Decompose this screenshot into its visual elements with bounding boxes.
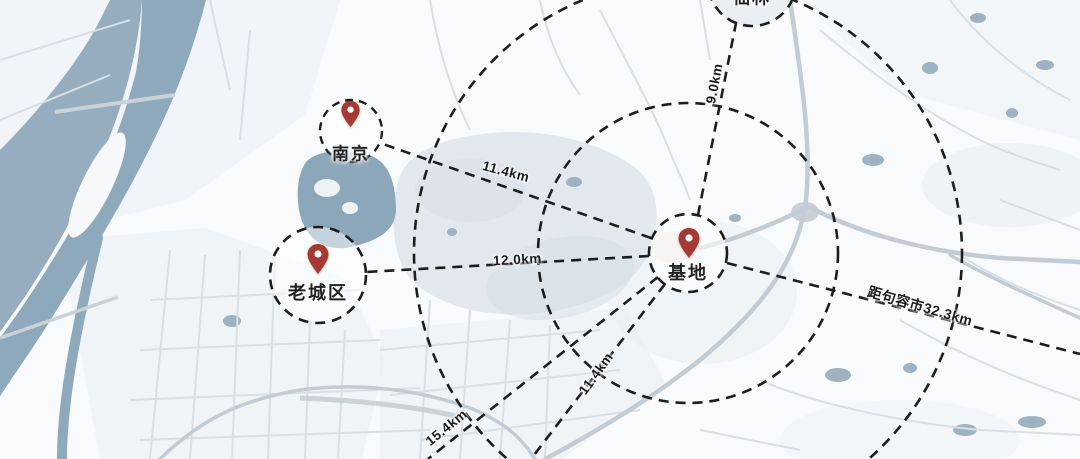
- xianlin-label: 仙林: [733, 0, 771, 9]
- map-canvas: 南京 老城区 基地 仙林 11.4km 12.0km 9.0km 11.4km …: [0, 0, 1080, 459]
- old-town-pin[interactable]: [306, 243, 330, 275]
- old-town-label: 老城区: [288, 279, 348, 305]
- distance-label-ssw: 15.4km: [423, 406, 470, 448]
- distance-label-southwest: 11.4km: [576, 350, 616, 398]
- distance-label-nanjing: 11.4km: [481, 158, 531, 185]
- annotation-overlay: 南京 老城区 基地 仙林 11.4km 12.0km 9.0km 11.4km …: [0, 0, 1080, 459]
- site-pin[interactable]: [677, 227, 701, 259]
- distance-label-xianlin: 9.0km: [703, 62, 726, 105]
- nanjing-pin[interactable]: [340, 100, 361, 128]
- distance-label-old-town: 12.0km: [493, 251, 543, 269]
- site-label: 基地: [668, 259, 708, 285]
- distance-label-jurong: 距句容市32.3km: [865, 281, 975, 330]
- nanjing-label: 南京: [332, 140, 370, 165]
